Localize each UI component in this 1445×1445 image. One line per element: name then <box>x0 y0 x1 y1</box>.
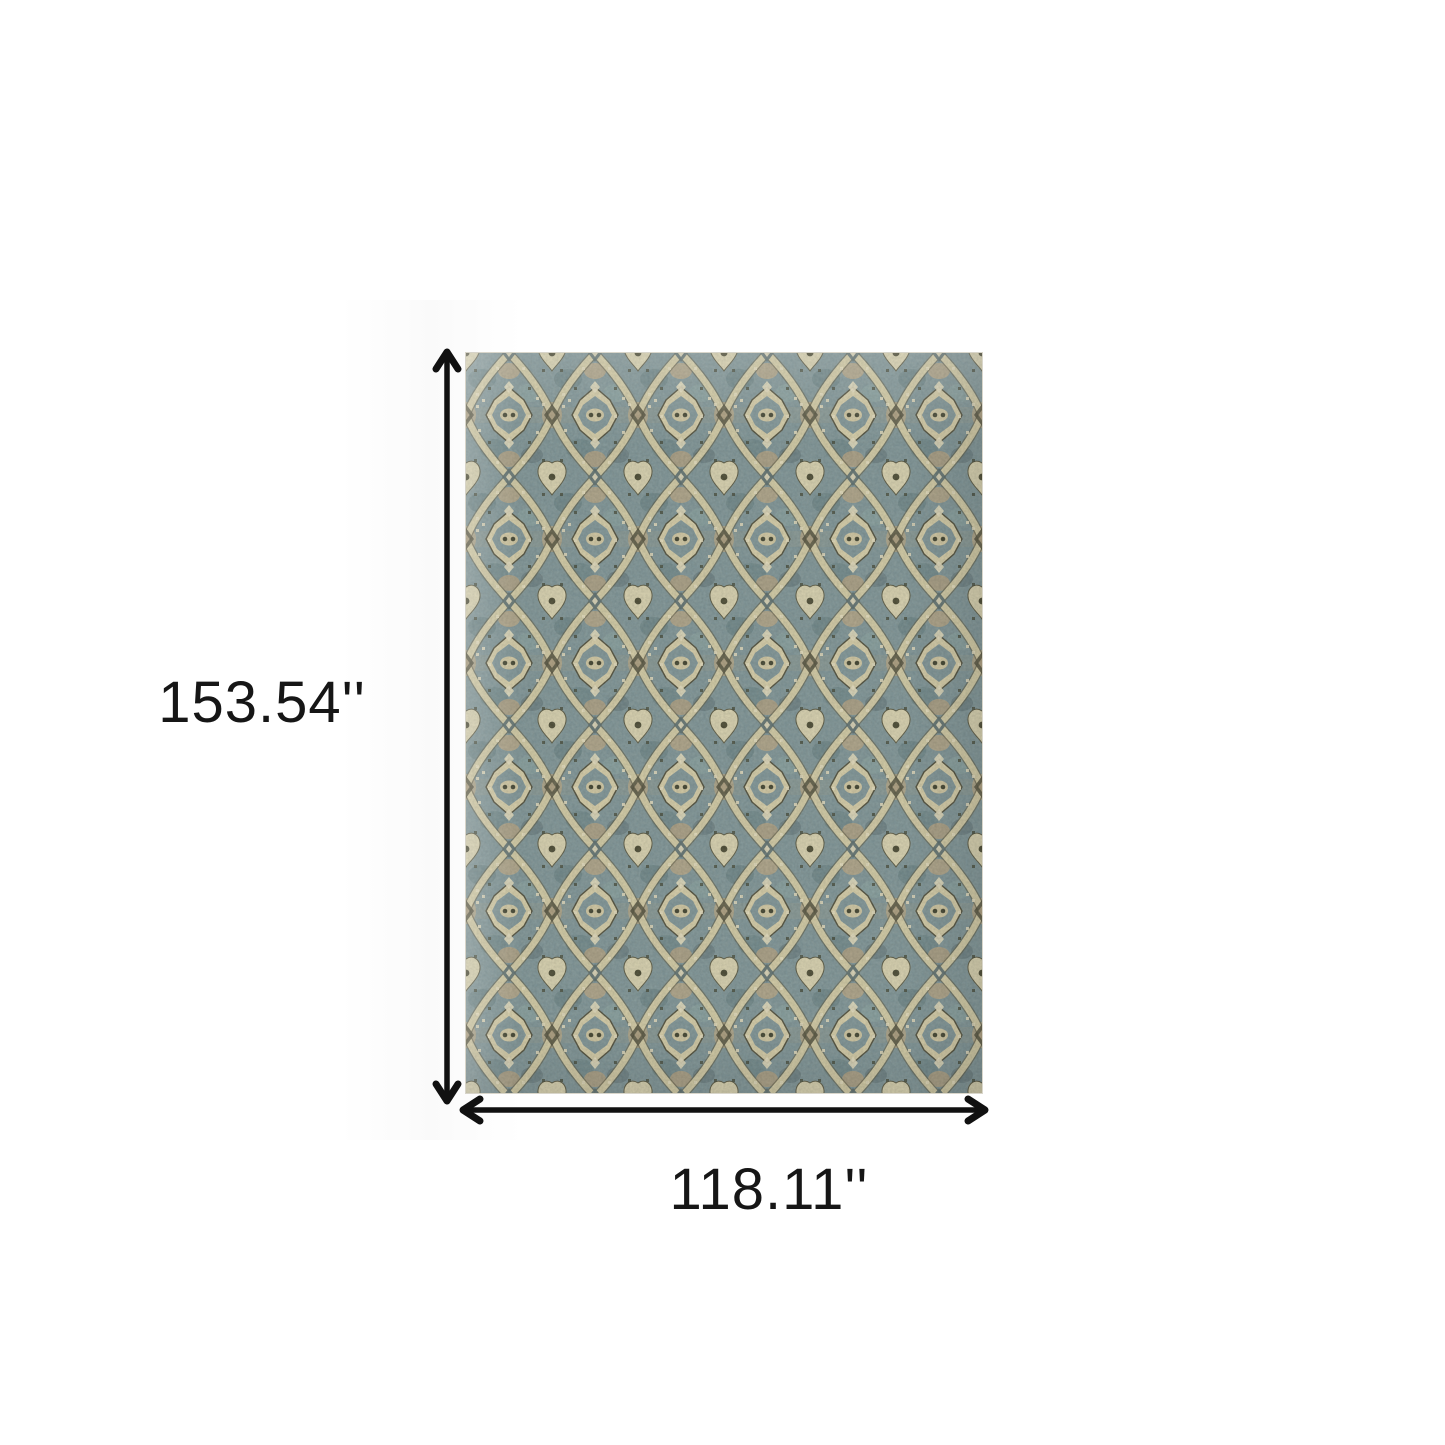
product-dimension-diagram: 153.54'' 118.11'' <box>0 0 1445 1445</box>
width-dimension-arrow-icon <box>463 1099 985 1121</box>
rug-pattern-graphic <box>466 353 982 1093</box>
height-dimension-arrow-icon <box>436 352 458 1101</box>
height-dimension-label: 153.54'' <box>92 668 432 738</box>
rug-image <box>466 353 982 1093</box>
width-dimension-label: 118.11'' <box>599 1155 939 1225</box>
